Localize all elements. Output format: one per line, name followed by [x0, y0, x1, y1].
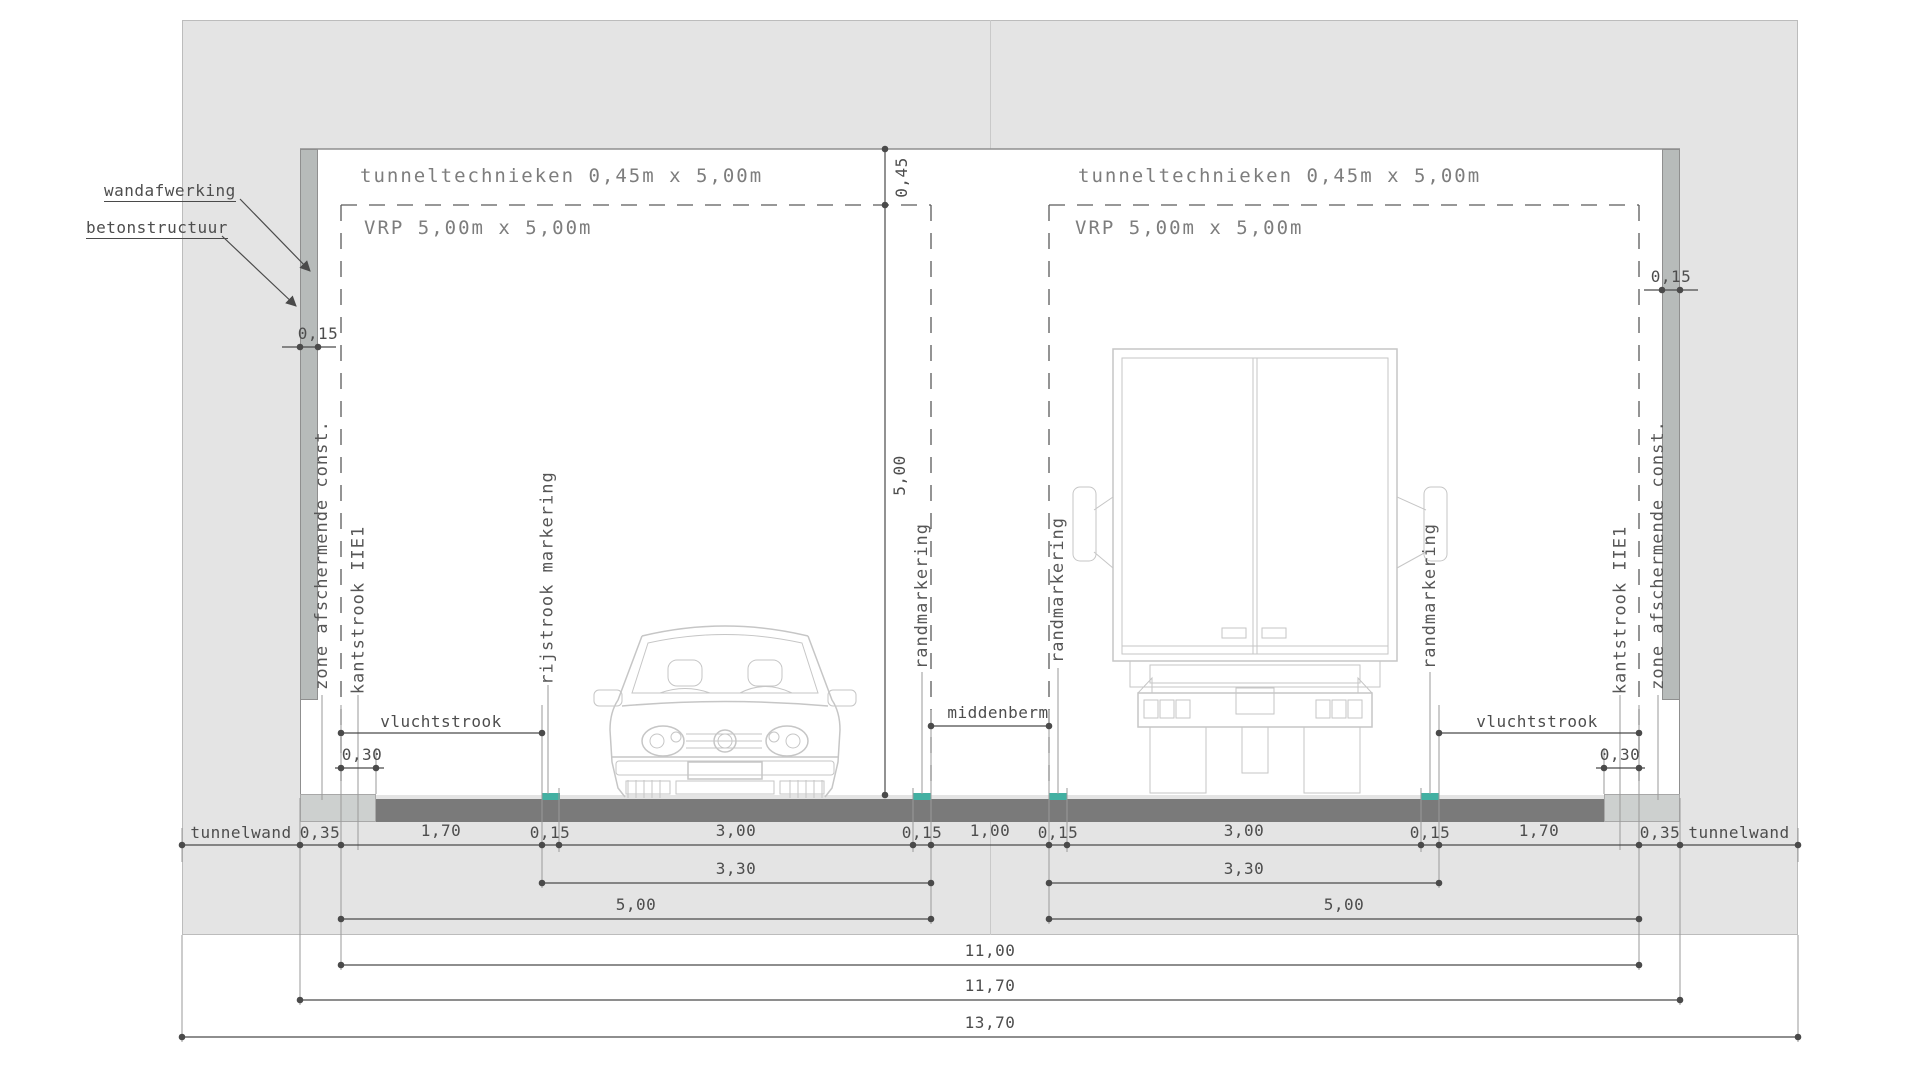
drawing-linework — [0, 0, 1920, 1080]
wandafwerking-text: wandafwerking — [104, 181, 236, 202]
vrp-envelope-left — [341, 205, 931, 792]
dimension-lines — [182, 149, 1798, 1037]
truck-rear-view — [1073, 349, 1447, 793]
dimension-dots — [179, 146, 1802, 1041]
betonstructuur-text: betonstructuur — [86, 218, 228, 239]
tunnel-cross-section-drawing: wandafwerking betonstructuur tunneltechn… — [0, 0, 1920, 1080]
car-front-view — [594, 626, 856, 798]
